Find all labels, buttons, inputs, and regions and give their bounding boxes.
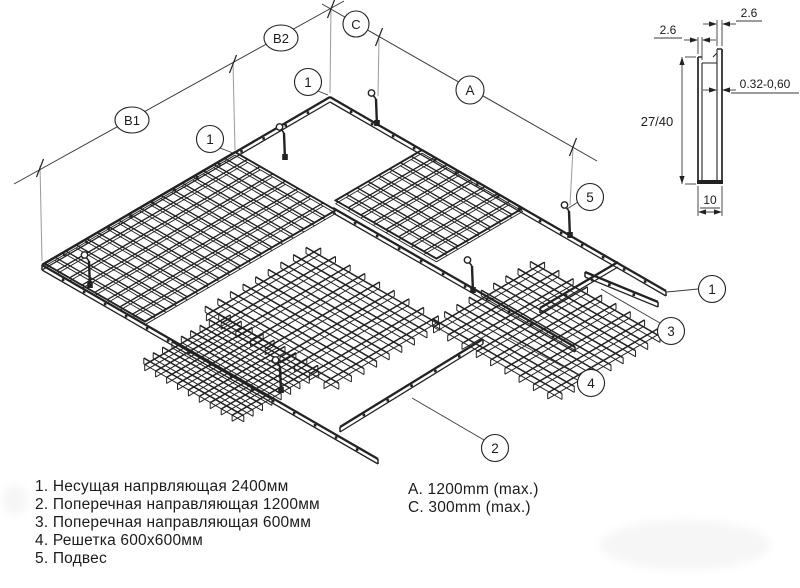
leader-line bbox=[601, 289, 660, 323]
callout-4-panel: 4 bbox=[587, 376, 595, 391]
dim-arrowhead bbox=[698, 209, 706, 214]
dim-arrowhead bbox=[709, 21, 717, 26]
cross-rail-600 bbox=[585, 272, 658, 307]
section-dim-thickness: 0.32-0,60 bbox=[740, 77, 791, 91]
leader-line bbox=[412, 398, 484, 440]
hanger-hook-icon bbox=[464, 257, 470, 263]
legend-note-c: C. 300mm (max.) bbox=[408, 499, 531, 517]
dim-arrowhead bbox=[690, 37, 698, 42]
dim-label-a: A bbox=[465, 83, 474, 98]
callout-1-nw-rail: 1 bbox=[206, 132, 214, 147]
extension-line bbox=[570, 149, 573, 205]
dim-arrowhead bbox=[722, 87, 730, 92]
dim-label-b2: B2 bbox=[273, 31, 289, 46]
hanger-hook-icon bbox=[81, 252, 87, 258]
section-dim-height: 27/40 bbox=[641, 114, 674, 129]
hanger-hook-icon bbox=[561, 202, 567, 208]
dim-arrowhead bbox=[679, 57, 684, 65]
hanger-field bbox=[276, 124, 288, 160]
extension-line bbox=[40, 166, 42, 261]
legend-note-a: A. 1200mm (max.) bbox=[408, 481, 539, 499]
dim-arrowhead bbox=[714, 209, 722, 214]
callout-5-hanger: 5 bbox=[586, 190, 594, 205]
extension-line bbox=[378, 39, 379, 96]
legend-item-4: 4. Решетка 600х600мм bbox=[35, 532, 203, 550]
legend-item-1: 1. Несущая напрвляющая 2400мм bbox=[35, 478, 288, 496]
callout-3-cross600: 3 bbox=[667, 324, 675, 339]
callout-2-cross1200: 2 bbox=[491, 441, 499, 456]
dim-arrowhead bbox=[722, 21, 730, 26]
installed-lattice-panel bbox=[336, 150, 523, 262]
dim-label-c: C bbox=[351, 17, 360, 32]
dim-label-b1: B1 bbox=[124, 113, 140, 128]
leader-line bbox=[567, 202, 578, 209]
leader-line bbox=[318, 91, 328, 95]
extension-line bbox=[330, 7, 331, 93]
section-dim-width: 10 bbox=[703, 193, 717, 207]
legend-item-3: 3. Поперечная направляющая 600мм bbox=[35, 514, 311, 532]
floating-panel-left bbox=[144, 314, 319, 421]
ceiling-assembly-sheet: B1B2CA115134227/402.62.60.32-0,6010 1. Н… bbox=[0, 0, 800, 588]
hanger-hook-icon bbox=[276, 124, 282, 130]
section-dim-top-left: 2.6 bbox=[660, 23, 677, 37]
section-dim-top-right: 2.6 bbox=[741, 6, 758, 20]
callout-1-north: 1 bbox=[304, 75, 312, 90]
dim-arrowhead bbox=[702, 37, 710, 42]
extension-line bbox=[233, 62, 235, 150]
scan-smudge bbox=[2, 485, 28, 515]
dim-arrowhead bbox=[709, 87, 717, 92]
dim-arrowhead bbox=[679, 176, 684, 184]
legend-item-2: 2. Поперечная направляющая 1200мм bbox=[35, 496, 320, 514]
carrier-rail-ne bbox=[330, 97, 666, 296]
hanger-hook-icon bbox=[368, 90, 374, 96]
legend-item-5: 5. Подвес bbox=[35, 550, 107, 568]
dim-line-b bbox=[14, 1, 344, 184]
hanger-hook-icon bbox=[272, 357, 278, 363]
leader-line bbox=[220, 148, 233, 153]
leader-line bbox=[667, 289, 698, 292]
profile-section-detail: 27/402.62.60.32-0,6010 bbox=[641, 6, 799, 216]
scan-smudge bbox=[600, 520, 770, 570]
callout-1-rail-end: 1 bbox=[708, 282, 716, 297]
